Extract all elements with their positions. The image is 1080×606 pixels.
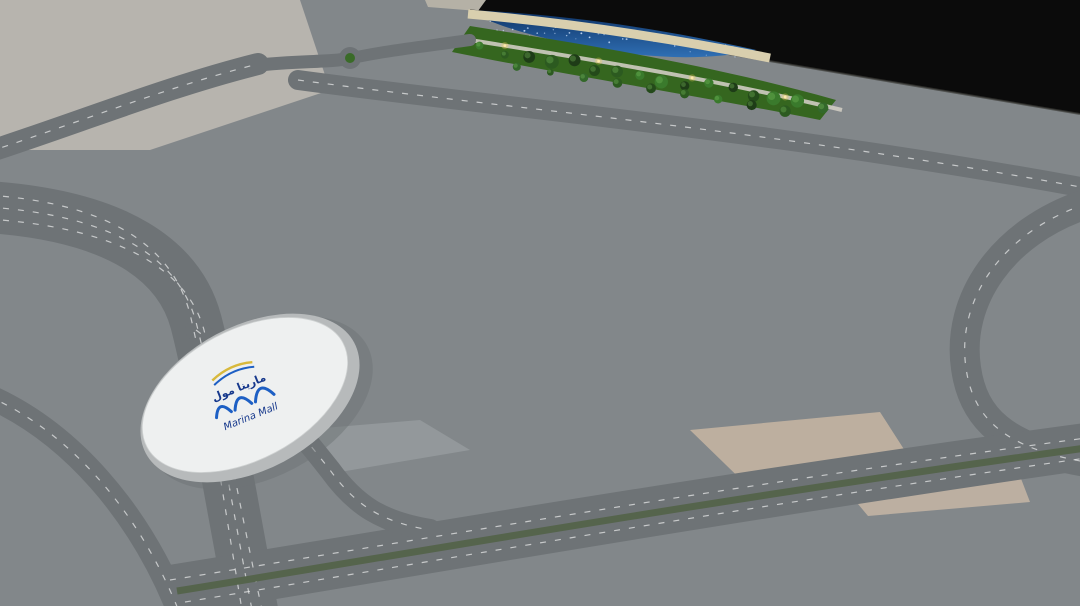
wave-sparkle [536,32,538,34]
wave-sparkle [503,30,505,32]
tree-canopy-highlight [524,52,530,58]
tree-canopy-highlight [570,55,576,61]
wave-sparkle [523,31,524,32]
wave-sparkle [544,33,545,34]
tree-canopy-highlight [681,82,686,87]
wave-sparkle [734,56,735,57]
tree-canopy-highlight [729,84,734,89]
scale-model-photo: مارينا مول Marina Mall [0,0,1080,606]
wave-sparkle [512,29,514,31]
tree-canopy-highlight [647,84,652,89]
wave-sparkle [553,29,554,30]
tree-canopy-highlight [749,91,755,97]
tree-canopy-highlight [819,104,825,110]
wave-sparkle [575,38,576,39]
tree-canopy-highlight [614,79,619,84]
tree-canopy-highlight [792,96,799,103]
tree-canopy-highlight [715,96,719,100]
tree-canopy-highlight [546,56,553,63]
wave-sparkle [626,38,628,40]
wave-sparkle [622,38,623,39]
tree-canopy-highlight [636,72,641,77]
tree-canopy-highlight [502,52,506,56]
tree-canopy-highlight [705,79,710,84]
tree-canopy-highlight [748,101,753,106]
wave-sparkle [569,32,571,34]
wave-sparkle [589,36,591,38]
wave-sparkle [690,51,691,52]
tree-canopy-highlight [590,66,596,72]
tree-canopy-highlight [476,42,480,46]
wave-sparkle [527,27,529,29]
wave-sparkle [554,33,555,34]
street-light [691,77,694,80]
model-scene: مارينا مول Marina Mall [0,0,1080,606]
wave-sparkle [566,35,567,36]
wave-sparkle [608,41,610,43]
tree-canopy-highlight [514,64,518,68]
tree-canopy-highlight [580,74,585,79]
tree-canopy-highlight [681,90,686,95]
tree-canopy-highlight [781,107,787,113]
street-light [597,60,600,63]
wave-sparkle [706,55,707,56]
tree-canopy-highlight [548,70,552,74]
wave-sparkle [490,21,491,22]
tree-canopy-highlight [768,93,775,100]
wave-sparkle [603,34,604,35]
tree-canopy-highlight [656,76,663,83]
wave-sparkle [674,45,676,47]
roundabout-island [345,53,355,63]
street-light [503,44,506,47]
road [250,58,352,66]
street-light [784,96,787,99]
wave-sparkle [580,32,582,34]
tree-canopy-highlight [612,67,618,73]
